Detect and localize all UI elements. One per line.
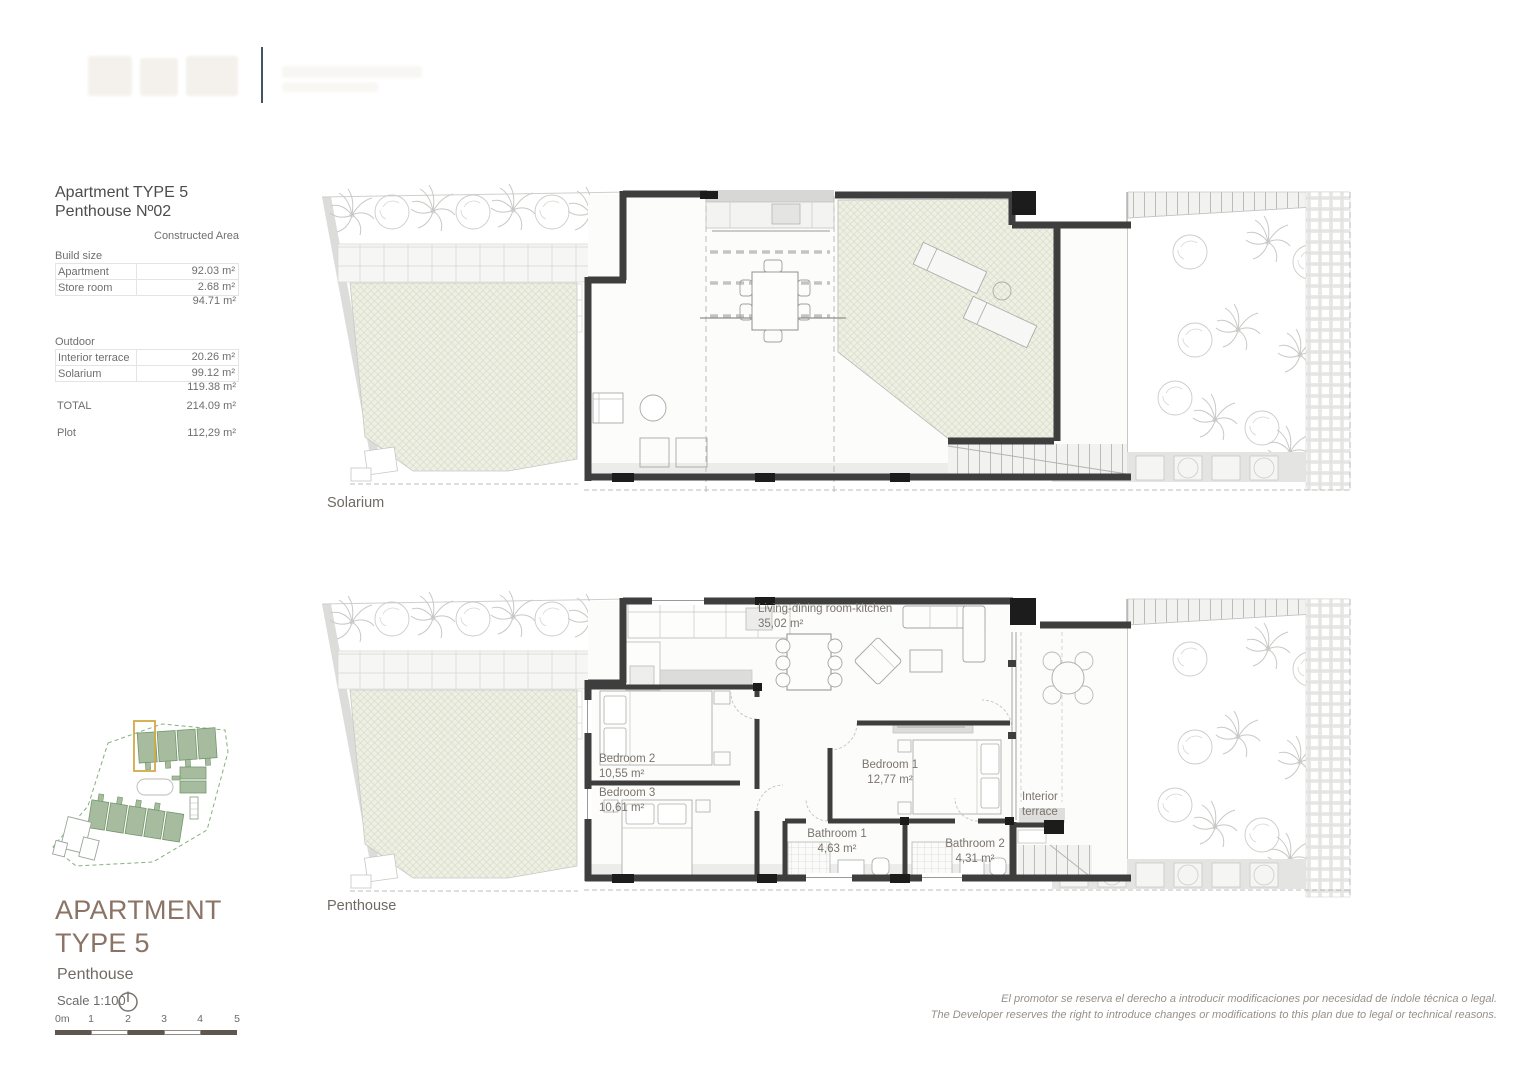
build-subtotal: 94.71 m² bbox=[55, 295, 239, 310]
floor-label: Penthouse bbox=[57, 966, 134, 984]
floorplan-page: { "info_panel": { "title_line1": "Apartm… bbox=[0, 0, 1527, 1080]
disclaimer-en: The Developer reserves the right to intr… bbox=[857, 1008, 1497, 1024]
label-bedroom-1: Bedroom 1 12,77 m² bbox=[840, 758, 940, 788]
row-label: Apartment bbox=[58, 266, 109, 278]
solarium-plan bbox=[322, 184, 1350, 492]
row-value: 2.68 m² bbox=[136, 280, 235, 295]
label-living-dining-kitchen: Living-dining room-kitchen 35,02 m² bbox=[758, 602, 968, 632]
site-key-map bbox=[53, 721, 228, 866]
table-row: Solarium 99.12 m² bbox=[55, 365, 239, 382]
label-bedroom-3: Bedroom 3 10,61 m² bbox=[599, 786, 689, 816]
column-header: Constructed Area bbox=[55, 230, 239, 242]
disclaimer-es: El promotor se reserva el derecho a intr… bbox=[857, 992, 1497, 1008]
table-row: Interior terrace 20.26 m² bbox=[55, 349, 239, 366]
scale-tick: 1 bbox=[88, 1013, 94, 1025]
row-label: Interior terrace bbox=[58, 352, 130, 364]
page-title: APARTMENT TYPE 5 bbox=[55, 894, 222, 960]
label-bathroom-2: Bathroom 2 4,31 m² bbox=[930, 837, 1020, 867]
apartment-subtitle: Penthouse Nº02 bbox=[55, 202, 239, 221]
row-label: Store room bbox=[58, 282, 112, 294]
row-value: 99.12 m² bbox=[136, 366, 235, 381]
outdoor-subtotal: 119.38 m² bbox=[55, 381, 239, 396]
scale-bar bbox=[55, 1030, 237, 1035]
plot-value: 112,29 m² bbox=[187, 427, 236, 439]
label-bathroom-1: Bathroom 1 4,63 m² bbox=[792, 827, 882, 857]
total-row: TOTAL 214.09 m² bbox=[55, 398, 239, 413]
floor-plan-graphics bbox=[0, 0, 1527, 1080]
plot-row: Plot 112,29 m² bbox=[55, 425, 239, 440]
scale-tick: 0m bbox=[55, 1013, 70, 1025]
row-label: Solarium bbox=[58, 368, 101, 380]
row-value: 92.03 m² bbox=[136, 264, 235, 279]
solarium-caption: Solarium bbox=[327, 495, 384, 511]
scale-tick: 3 bbox=[161, 1013, 167, 1025]
plot-label: Plot bbox=[57, 427, 76, 439]
total-label: TOTAL bbox=[57, 400, 91, 412]
north-arrow-icon bbox=[115, 988, 141, 1014]
label-interior-terrace: Interior terrace bbox=[1022, 790, 1074, 820]
total-value: 214.09 m² bbox=[186, 400, 236, 412]
row-value: 20.26 m² bbox=[136, 350, 235, 365]
apartment-title: Apartment TYPE 5 bbox=[55, 183, 239, 202]
scale-tick: 4 bbox=[197, 1013, 203, 1025]
outdoor-label: Outdoor bbox=[55, 335, 239, 349]
table-row: Apartment 92.03 m² bbox=[55, 263, 239, 280]
table-row: Store room 2.68 m² bbox=[55, 279, 239, 296]
disclaimer: El promotor se reserva el derecho a intr… bbox=[857, 992, 1497, 1024]
scale-tick: 5 bbox=[234, 1013, 240, 1025]
scale-tick: 2 bbox=[125, 1013, 131, 1025]
label-bedroom-2: Bedroom 2 10,55 m² bbox=[599, 752, 689, 782]
info-panel: Apartment TYPE 5 Penthouse Nº02 Construc… bbox=[55, 183, 239, 440]
penthouse-caption: Penthouse bbox=[327, 898, 396, 914]
build-size-label: Build size bbox=[55, 249, 239, 263]
